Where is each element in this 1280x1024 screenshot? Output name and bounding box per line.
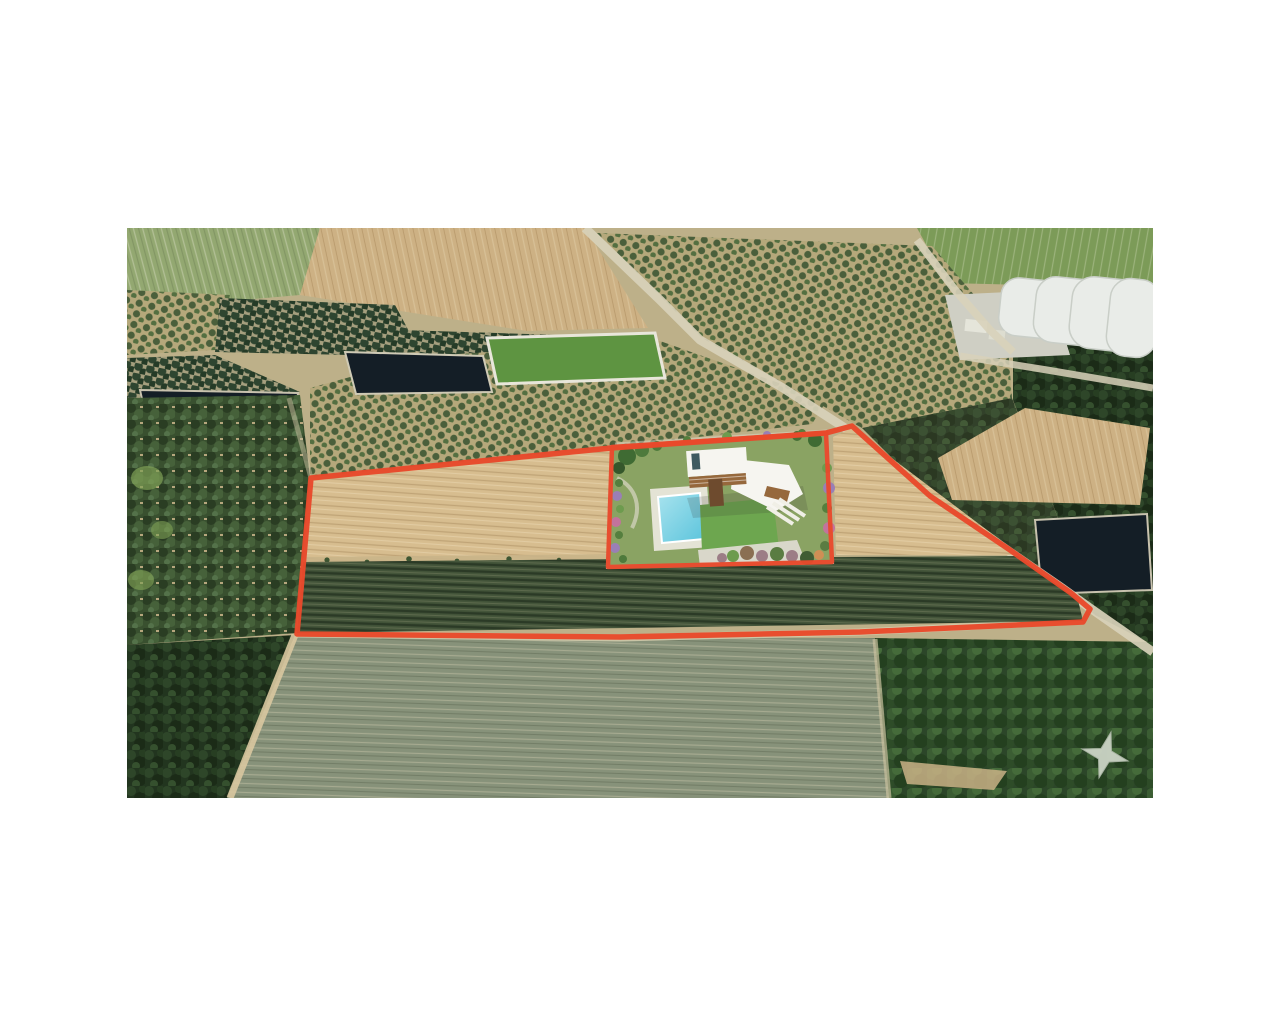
scrub-green-patch: [151, 521, 173, 539]
aerial-photo: [127, 228, 1153, 798]
house-skylight: [691, 453, 700, 470]
screenshot-canvas: [0, 0, 1280, 1024]
stubble-field-bottom: [227, 637, 889, 798]
scrubland-left: [127, 395, 310, 645]
orchard-block-dark: [215, 298, 420, 355]
water-channel: [345, 352, 492, 394]
orchard-block-left: [127, 290, 230, 355]
house-dark-panel: [708, 479, 724, 507]
scrub-green-patch: [128, 570, 154, 590]
aerial-photo-svg: [127, 228, 1153, 798]
villa-parcel: [608, 429, 835, 567]
scrub-green-patch: [131, 466, 163, 490]
walled-green-field: [487, 333, 665, 384]
plot-vineyard: [297, 556, 1083, 633]
